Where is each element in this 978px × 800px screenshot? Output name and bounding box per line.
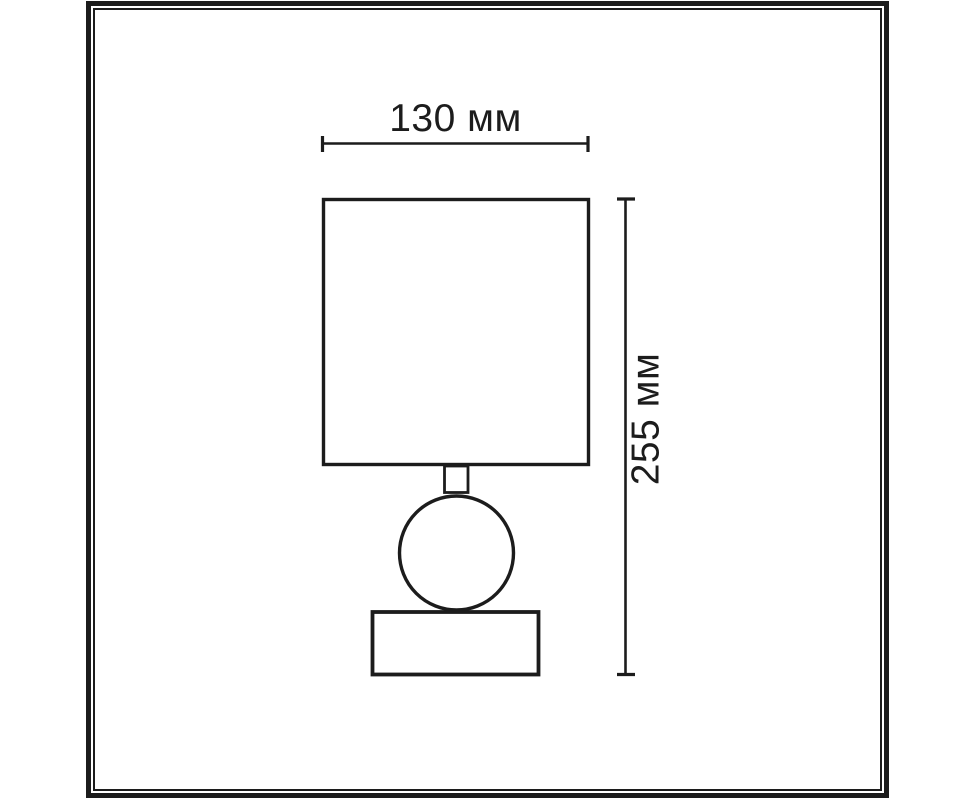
lamp-outline xyxy=(324,200,589,675)
lamp-neck-outline xyxy=(445,466,469,493)
lamp-sphere-outline xyxy=(400,496,514,610)
product-dimension-drawing: 130 мм 255 мм xyxy=(0,0,978,800)
height-dimension-label: 255 мм xyxy=(627,353,668,486)
lampshade-outline xyxy=(324,200,589,465)
width-dimension-label: 130 мм xyxy=(322,99,589,140)
lamp-base-outline xyxy=(373,612,539,675)
